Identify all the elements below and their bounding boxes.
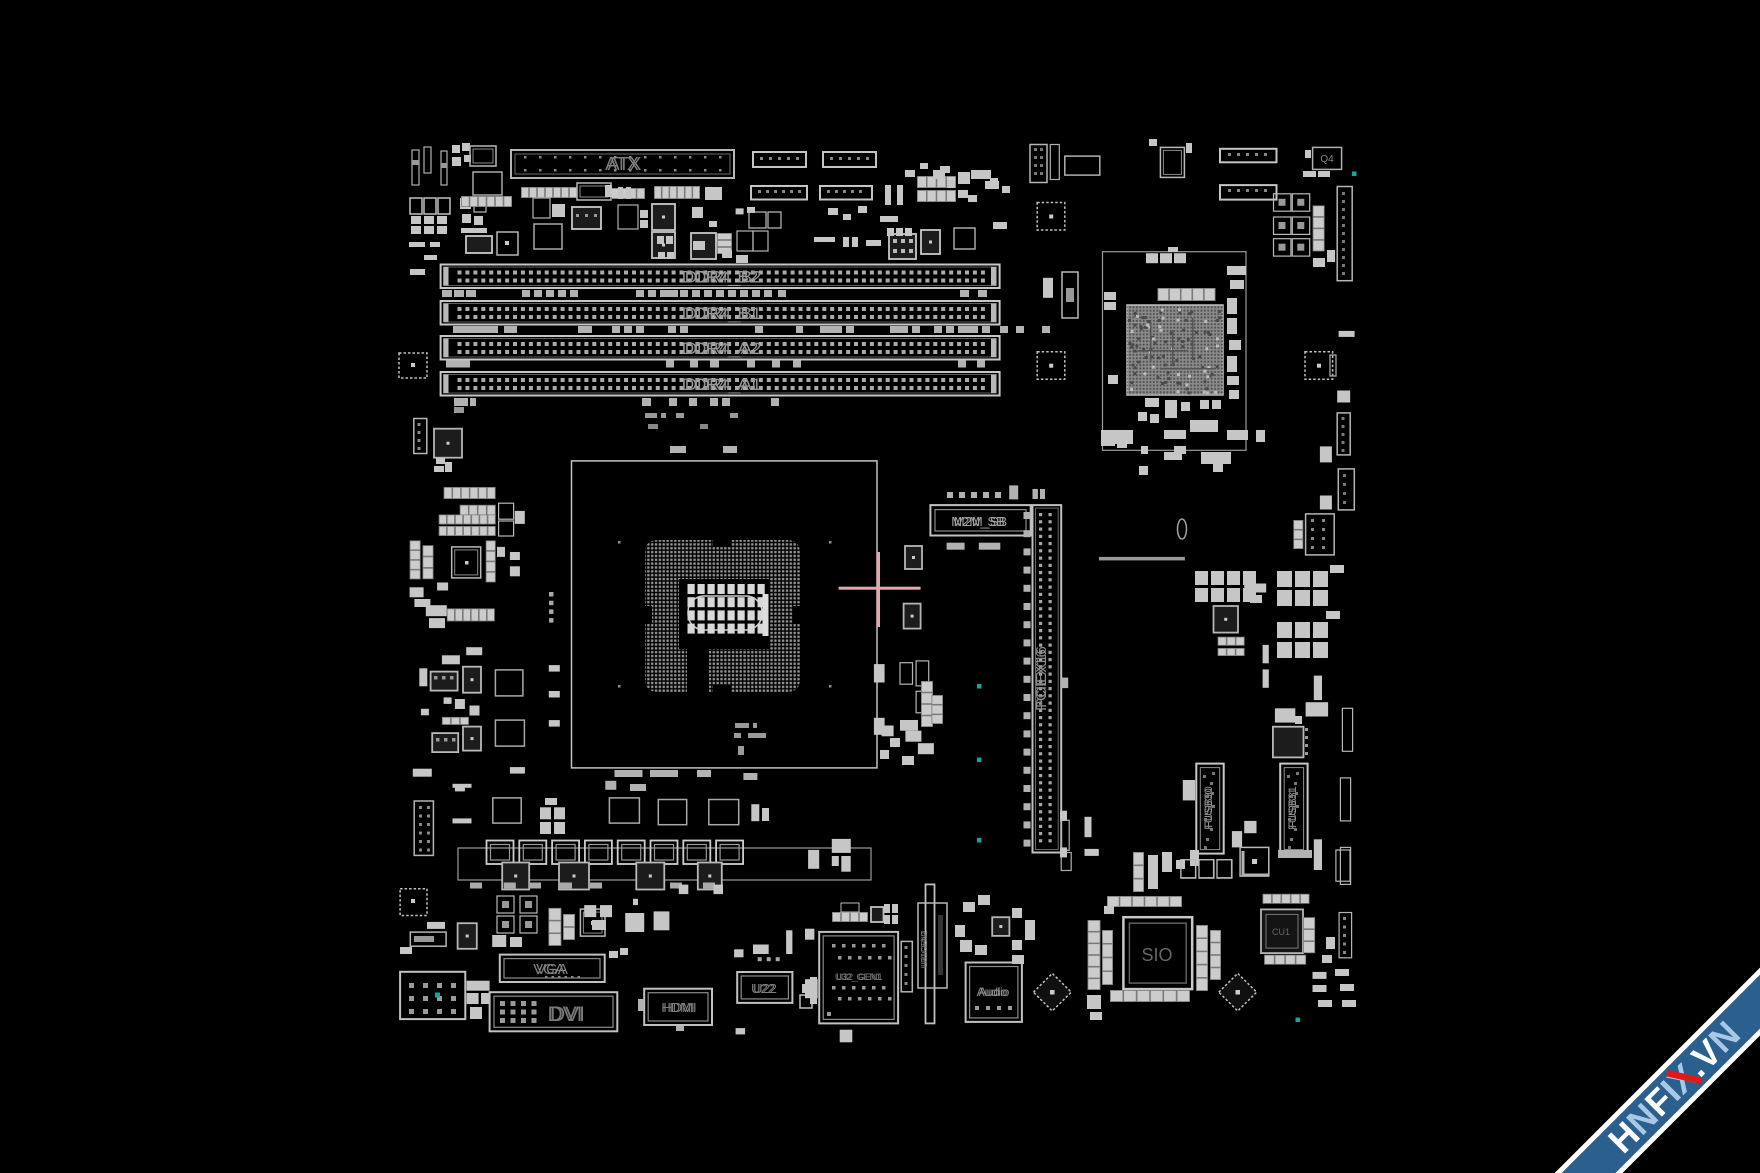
svg-text:ATX: ATX xyxy=(608,154,642,174)
svg-text:SIO: SIO xyxy=(1141,945,1172,965)
svg-text:DVI: DVI xyxy=(550,1003,585,1026)
svg-text:CU1: CU1 xyxy=(1272,927,1290,937)
svg-text:U31GEN2: U31GEN2 xyxy=(920,930,929,967)
svg-text:U32_GEN1: U32_GEN1 xyxy=(836,972,882,982)
svg-text:Audio: Audio xyxy=(979,985,1010,999)
svg-text:M2M_SB: M2M_SB xyxy=(954,514,1007,529)
svg-text:Q4: Q4 xyxy=(1320,154,1334,165)
svg-text:PCIEX16: PCIEX16 xyxy=(1033,646,1050,708)
svg-text:HDMI: HDMI xyxy=(663,1000,696,1015)
svg-text:DDR4_A2: DDR4_A2 xyxy=(685,339,762,358)
svg-text:DDR4_B2: DDR4_B2 xyxy=(685,268,762,287)
svg-text:VGA: VGA xyxy=(536,961,568,978)
svg-text:U22: U22 xyxy=(753,981,777,996)
svg-text:DDR4_A1: DDR4_A1 xyxy=(685,375,762,394)
svg-text:DDR4_B1: DDR4_B1 xyxy=(685,304,762,323)
